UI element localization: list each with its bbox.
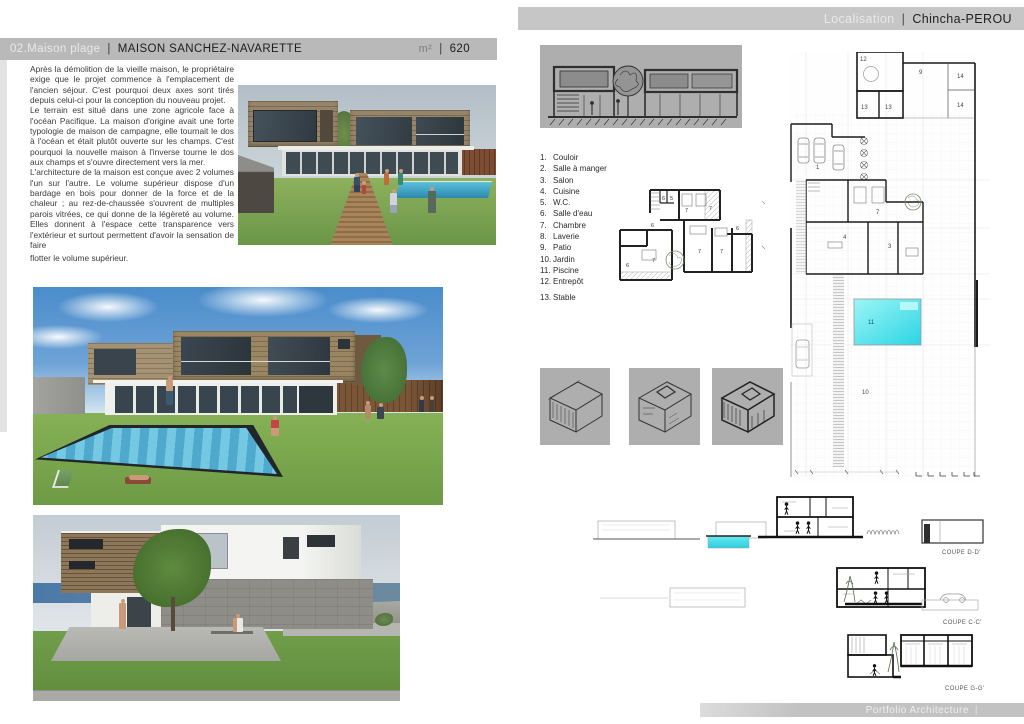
render2-person xyxy=(166,380,173,405)
section-coupe-d: COUPE D-D' xyxy=(593,497,983,556)
render3-bench xyxy=(211,631,253,634)
render2-tree xyxy=(361,337,407,403)
legend-item: 7.Chambre xyxy=(540,220,607,231)
render2-glass-facade xyxy=(105,383,337,415)
project-title: MAISON SANCHEZ-NAVARETTE xyxy=(118,43,302,55)
room-number: 7 xyxy=(709,206,712,212)
legend-item: 2.Salle à manger xyxy=(540,163,607,174)
upper-floor-plan: 6 5 7 7 6 7 6 7 6 7 xyxy=(612,168,767,293)
section-coupe-g: COUPE G-G' xyxy=(848,635,984,692)
plan-number: 14 xyxy=(957,74,964,80)
section-figure xyxy=(873,664,877,676)
render2-person xyxy=(429,400,434,412)
render3-person xyxy=(119,603,126,629)
render1-wood-volume-right xyxy=(350,110,470,150)
legend-label: Salon xyxy=(553,176,573,185)
render3-window-slot xyxy=(69,561,95,569)
legend-item: 4.Cuisine xyxy=(540,186,607,197)
render3-window xyxy=(307,535,335,547)
render2-patio-shadow xyxy=(299,386,333,413)
legend-label: Chambre xyxy=(553,221,586,230)
legend-item: 12.Entrepôt xyxy=(540,276,607,287)
plan-number: 10 xyxy=(862,390,869,396)
render3-window xyxy=(283,537,299,559)
section-figure xyxy=(875,571,879,583)
legend-label: Jardin xyxy=(553,255,575,264)
render-garden-approach xyxy=(238,85,496,245)
render3-window-slot xyxy=(69,539,103,549)
legend-num: 9. xyxy=(540,242,553,253)
legend-label: Entrepôt xyxy=(553,277,583,286)
legend-num: 1. xyxy=(540,152,553,163)
legend-item: 3.Salon xyxy=(540,175,607,186)
legend-num: 5. xyxy=(540,197,553,208)
render1-window xyxy=(320,110,333,142)
title-separator: | xyxy=(107,43,110,55)
building-sections: COUPE D-D' COUPE xyxy=(588,494,988,694)
legend-item: 10.Jardin xyxy=(540,254,607,265)
legend-item: 5.W.C. xyxy=(540,197,607,208)
concept-sketch-elevation xyxy=(540,45,742,128)
area-separator: | xyxy=(439,43,442,55)
location-label: Localisation xyxy=(824,12,895,26)
footer-label: Portfolio Architecture xyxy=(866,705,969,716)
area-unit: m² xyxy=(419,43,433,55)
render3-person xyxy=(233,618,243,632)
room-number: 6 xyxy=(626,263,629,269)
render-pool-view xyxy=(33,287,443,505)
area-value: 620 xyxy=(450,43,470,55)
plan-number: 13 xyxy=(861,105,868,111)
render1-wood-volume-left xyxy=(248,101,338,147)
render3-platform-edge xyxy=(33,690,400,701)
render1-person xyxy=(390,193,397,213)
location-header-bar: Localisation | Chincha-PEROU xyxy=(518,7,1024,30)
render2-wood-volume-main xyxy=(173,331,355,383)
axonometric-sketch-2 xyxy=(629,368,700,445)
render2-person xyxy=(419,400,424,412)
legend-label: Cuisine xyxy=(553,187,580,196)
legend-num: 7. xyxy=(540,220,553,231)
section-coupe-c: COUPE C-C' xyxy=(600,568,982,626)
section-figure xyxy=(796,521,800,533)
render1-person xyxy=(428,191,436,213)
render1-glass-panels xyxy=(286,152,458,174)
render1-glass-facade xyxy=(282,150,462,176)
legend-num: 3. xyxy=(540,175,553,186)
section-label: COUPE C-C' xyxy=(943,620,982,626)
axonometric-sketch-1 xyxy=(540,368,610,445)
footer-bar: Portfolio Architecture | xyxy=(700,703,1024,717)
location-separator: | xyxy=(902,12,906,26)
render1-balcony-rail xyxy=(416,134,464,135)
render1-person xyxy=(354,177,360,192)
legend-item: 9.Patio xyxy=(540,242,607,253)
legend-item: 13.Stable xyxy=(540,292,607,303)
legend-item: 11.Piscine xyxy=(540,265,607,276)
section-figure xyxy=(785,502,789,514)
location-value: Chincha-PEROU xyxy=(912,12,1012,26)
room-number: 7 xyxy=(685,208,688,214)
render3-tree-trunk xyxy=(171,597,175,631)
render2-left-wall xyxy=(33,377,85,414)
render2-glass-panels xyxy=(115,386,297,413)
room-number: 7 xyxy=(652,258,655,264)
legend-num: 11. xyxy=(540,265,553,276)
project-index: 02.Maison plage xyxy=(10,43,100,55)
render1-person xyxy=(362,185,366,194)
legend-num: 13. xyxy=(540,292,553,303)
render2-window xyxy=(338,339,350,349)
room-number: 6 xyxy=(662,196,665,202)
plan-number: 13 xyxy=(885,105,892,111)
legend-label: W.C. xyxy=(553,198,570,207)
room-legend: 1.Couloir 2.Salle à manger 3.Salon 4.Cui… xyxy=(540,152,607,303)
description-paragraph-1: Après la démolition de la vieille maison… xyxy=(30,64,234,105)
legend-label: Salle d'eau xyxy=(553,209,592,218)
project-description: Après la démolition de la vieille maison… xyxy=(30,64,234,264)
footer-separator: | xyxy=(975,705,978,716)
render2-person xyxy=(271,420,279,436)
legend-num: 2. xyxy=(540,163,553,174)
room-number: 5 xyxy=(670,196,673,202)
site-plan: 12 9 14 14 13 13 1 7 4 3 11 10 xyxy=(788,52,990,487)
project-title-bar: 02.Maison plage | MAISON SANCHEZ-NAVARET… xyxy=(0,38,497,60)
render2-window xyxy=(94,349,136,375)
description-paragraph-3: L'architecture de la maison est conçue a… xyxy=(30,167,234,250)
description-paragraph-2: Le terrain est situé dans une zone agric… xyxy=(30,105,234,167)
legend-num: 4. xyxy=(540,186,553,197)
render2-wood-volume-left xyxy=(88,343,173,385)
render2-glass xyxy=(268,337,330,375)
legend-num: 8. xyxy=(540,231,553,242)
cloud xyxy=(58,292,158,322)
legend-item: 8.Laverie xyxy=(540,231,607,242)
legend-item: 1.Couloir xyxy=(540,152,607,163)
section-label: COUPE G-G' xyxy=(945,686,984,692)
render1-window xyxy=(356,117,412,145)
room-number: 6 xyxy=(651,223,654,229)
legend-num: 6. xyxy=(540,208,553,219)
legend-label: Salle à manger xyxy=(553,164,607,173)
render-rear-view xyxy=(33,515,400,701)
render1-window xyxy=(253,110,317,142)
plan-number: 14 xyxy=(957,103,964,109)
room-number: 6 xyxy=(736,226,739,232)
cloud xyxy=(328,297,428,323)
render2-person xyxy=(365,405,371,419)
left-edge-strip xyxy=(0,60,7,432)
render1-person xyxy=(384,173,389,185)
room-number: 7 xyxy=(698,249,701,255)
plan-number: 12 xyxy=(860,57,867,63)
room-number: 7 xyxy=(720,249,723,255)
section-figure xyxy=(874,591,878,603)
render2-person xyxy=(377,407,384,419)
render1-person xyxy=(398,173,403,185)
legend-num: 10. xyxy=(540,254,553,265)
legend-label: Couloir xyxy=(553,153,578,162)
render2-sunbather xyxy=(129,475,149,480)
legend-label: Stable xyxy=(553,293,576,302)
section-figure xyxy=(807,521,811,533)
legend-label: Laverie xyxy=(553,232,579,241)
description-paragraph-4: flotter le volume supérieur. xyxy=(30,253,234,263)
legend-item: 6.Salle d'eau xyxy=(540,208,607,219)
render2-balcony-rail xyxy=(181,361,330,362)
render2-glass xyxy=(181,337,251,375)
portfolio-page: Localisation | Chincha-PEROU 02.Maison p… xyxy=(0,0,1024,724)
plan-number: 11 xyxy=(868,320,875,326)
render1-pool xyxy=(396,181,492,198)
legend-label: Piscine xyxy=(553,266,579,275)
legend-label: Patio xyxy=(553,243,571,252)
section-label: COUPE D-D' xyxy=(942,550,981,556)
legend-num: 12. xyxy=(540,276,553,287)
render1-window xyxy=(416,117,464,145)
axonometric-sketch-3 xyxy=(712,368,783,445)
